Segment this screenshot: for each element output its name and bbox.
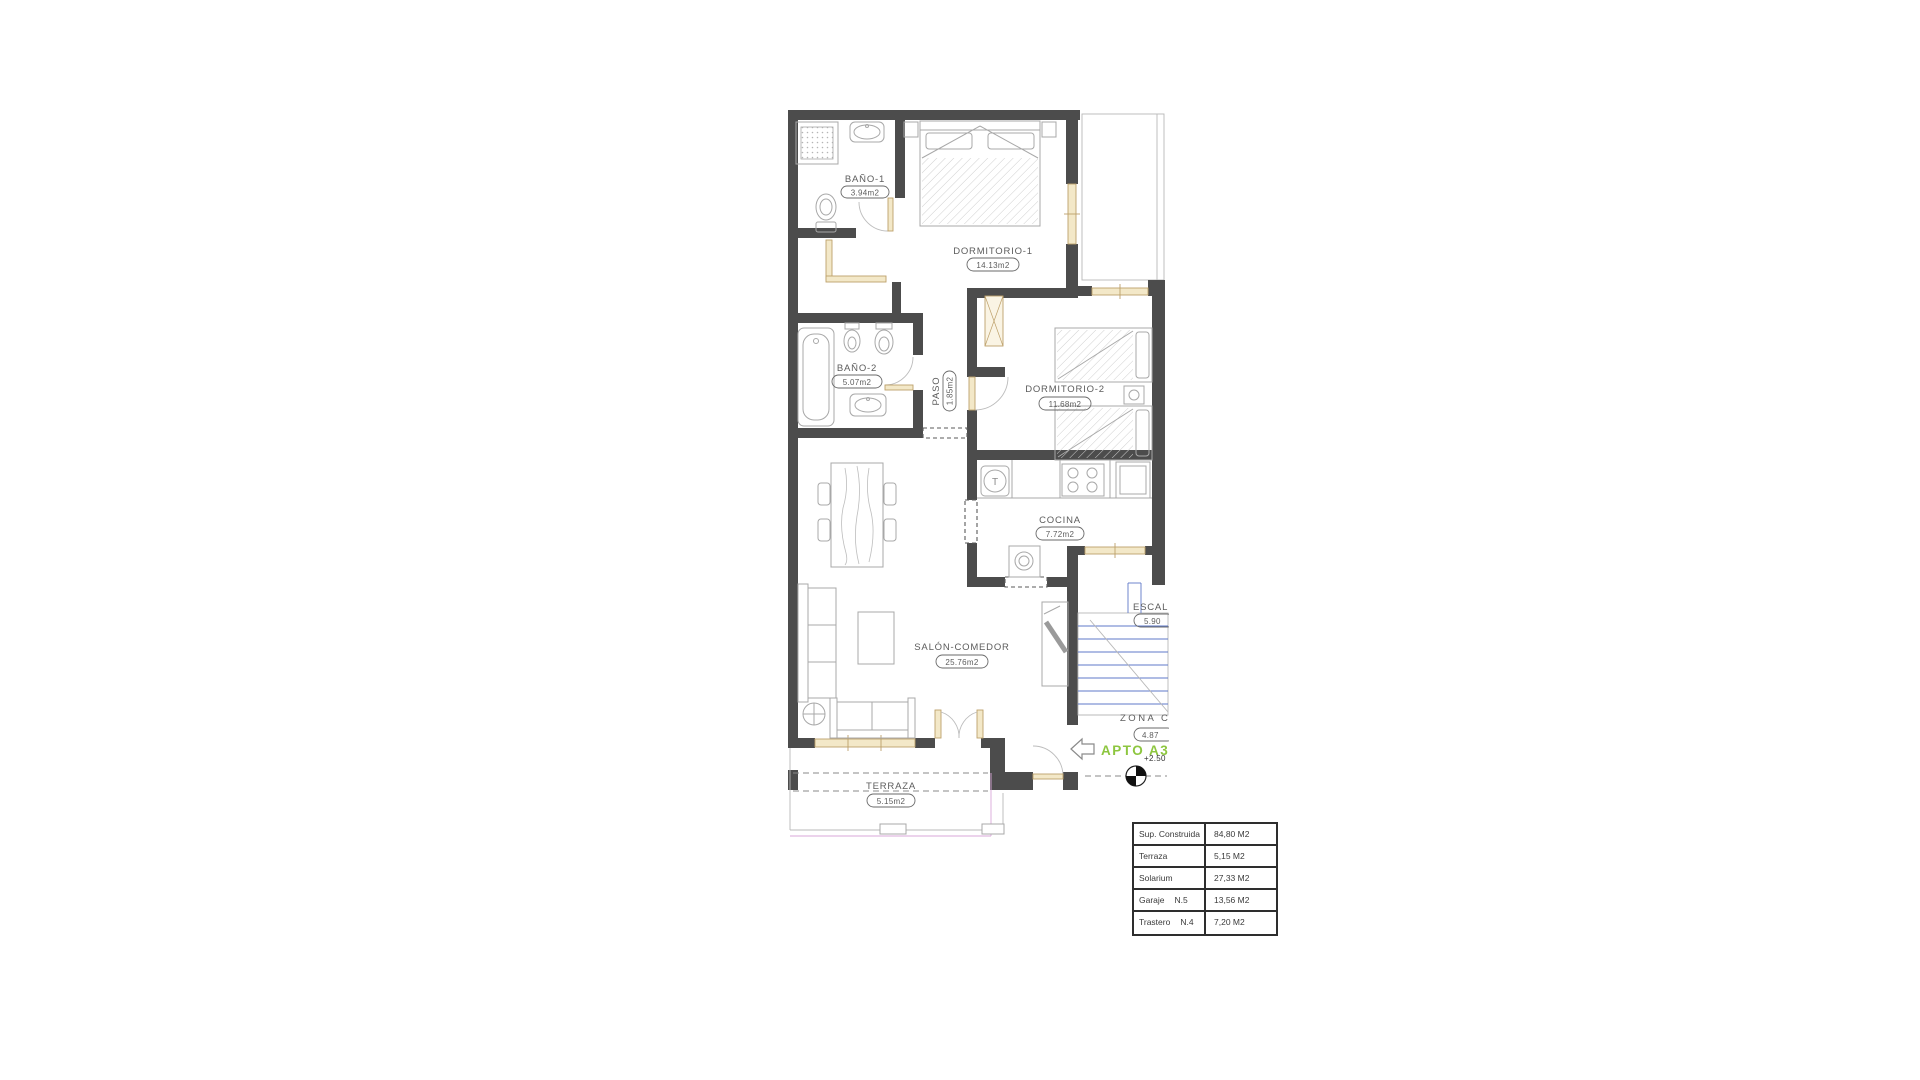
room-area-bano2: 5.07m2	[843, 378, 872, 387]
fridge-icon	[1116, 462, 1150, 498]
toilet-icon	[816, 194, 836, 232]
row-label: Trastero	[1139, 917, 1170, 927]
room-name-dormitorio1: DORMITORIO-1	[953, 246, 1033, 257]
row-label: Garaje	[1139, 895, 1165, 905]
side-table-icon	[803, 703, 825, 725]
row-label: Terraza	[1139, 851, 1167, 861]
row-value: 84,80 M2	[1204, 824, 1276, 844]
double-bed-icon	[904, 121, 1056, 226]
terrace	[790, 748, 1167, 836]
dining-table-icon	[818, 463, 896, 567]
room-area-zona-comun: 4.87	[1142, 731, 1159, 740]
row-value: 13,56 M2	[1204, 890, 1276, 910]
room-area-salon: 25.76m2	[945, 658, 978, 667]
closet-icon	[826, 240, 886, 282]
row-label: Solarium	[1139, 873, 1173, 883]
wardrobe-icon	[985, 296, 1003, 346]
nightstand-icon	[1124, 386, 1144, 404]
table-row: Terraza 5,15 M2	[1134, 846, 1276, 868]
entry-arrow-icon	[1071, 739, 1094, 759]
room-name-terraza: TERRAZA	[866, 781, 916, 792]
table-row: Sup. Construida 84,80 M2	[1134, 824, 1276, 846]
bathtub-icon	[798, 328, 834, 426]
sink-icon	[850, 122, 884, 142]
table-row: Solarium 27,33 M2	[1134, 868, 1276, 890]
sofa-icon	[798, 584, 836, 702]
apartment-label: APTO A3	[1101, 743, 1169, 758]
room-area-paso: 1.85m2	[946, 377, 955, 406]
bidet-icon	[844, 323, 860, 352]
room-name-bano1: BAÑO-1	[845, 174, 885, 185]
room-name-bano2: BAÑO-2	[837, 363, 877, 374]
room-name-salon: SALÓN-COMEDOR	[914, 642, 1009, 653]
floor-plan-canvas: T	[0, 0, 1920, 1080]
single-bed-1-icon	[1055, 328, 1152, 382]
row-label: Sup. Construida	[1139, 829, 1200, 839]
table-row: TrasteroN.4 7,20 M2	[1134, 912, 1276, 934]
kitchen-sink-icon: T	[981, 466, 1009, 496]
row-ref: N.5	[1175, 895, 1188, 905]
room-name-zona-comun: ZONA C	[1120, 713, 1170, 724]
row-value: 27,33 M2	[1204, 868, 1276, 888]
row-ref: N.4	[1180, 917, 1193, 927]
summary-table: Sup. Construida 84,80 M2 Terraza 5,15 M2…	[1132, 822, 1278, 936]
room-area-cocina: 7.72m2	[1046, 530, 1075, 539]
loveseat-icon	[830, 698, 915, 738]
doors	[859, 198, 1063, 779]
level-marker-icon	[1126, 766, 1146, 786]
room-name-paso: PASO	[931, 377, 942, 406]
room-name-dormitorio2: DORMITORIO-2	[1025, 384, 1105, 395]
sink2-icon	[850, 394, 886, 416]
stove-icon	[1062, 464, 1104, 496]
washer-icon	[1009, 546, 1040, 577]
sink-symbol: T	[992, 477, 998, 488]
room-area-terraza: 5.15m2	[877, 797, 906, 806]
shower-icon	[796, 122, 838, 164]
room-name-cocina: COCINA	[1039, 515, 1081, 526]
room-area-bano1: 3.94m2	[851, 189, 880, 198]
room-area-escalera: 5.90	[1144, 617, 1161, 626]
page: T	[0, 0, 1920, 1080]
row-value: 7,20 M2	[1204, 912, 1276, 934]
tv-unit-icon	[1042, 602, 1068, 686]
toilet2-icon	[875, 323, 893, 354]
coffee-table-icon	[858, 612, 894, 664]
table-row: GarajeN.5 13,56 M2	[1134, 890, 1276, 912]
room-area-dormitorio2: 11.68m2	[1049, 400, 1082, 409]
stairwell-outline	[1082, 114, 1164, 280]
row-value: 5,15 M2	[1204, 846, 1276, 866]
room-area-dormitorio1: 14.13m2	[976, 261, 1009, 270]
room-name-escalera: ESCAL	[1133, 602, 1168, 613]
